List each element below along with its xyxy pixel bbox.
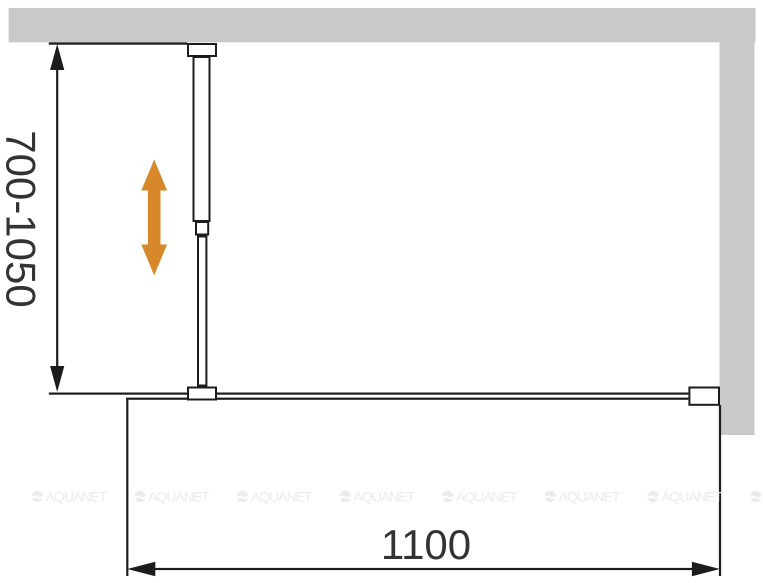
svg-text:AQUANET: AQUANET [456,489,518,505]
svg-text:1100: 1100 [381,521,471,568]
svg-text:AQUANET: AQUANET [148,489,210,505]
svg-text:AQUANET: AQUANET [661,489,723,505]
svg-text:AQUANET: AQUANET [46,489,108,505]
svg-text:700-1050: 700-1050 [0,130,45,308]
svg-text:AQUANET: AQUANET [559,489,621,505]
svg-text:AQUANET: AQUANET [353,489,415,505]
svg-text:AQUANET: AQUANET [251,489,313,505]
